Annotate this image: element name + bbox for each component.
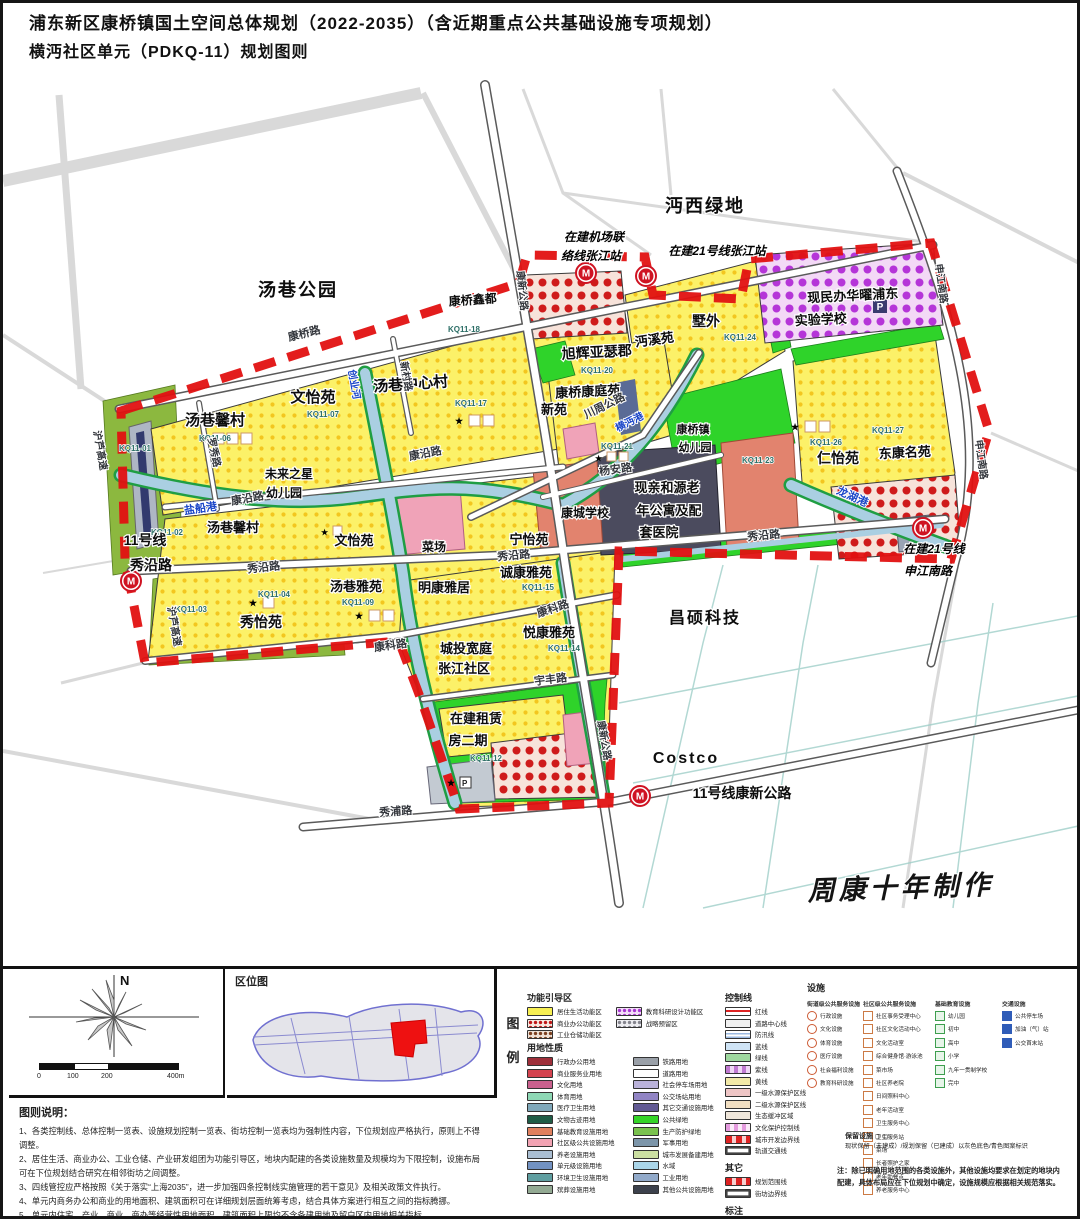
legend-item: 社区养老院: [863, 1078, 923, 1088]
facility-icon: [863, 1011, 873, 1021]
map-label: 康桥鑫都: [448, 290, 497, 308]
map-label: 宁怡苑: [509, 532, 548, 547]
map-label: 文怡苑: [290, 388, 335, 406]
svg-text:P: P: [462, 779, 468, 788]
legend-item: 社区级公共设施用地: [527, 1138, 615, 1147]
legend-item: 文物古迹用地: [527, 1115, 615, 1124]
facility-group-education: 基础教育设施 幼儿园初中高中小学九年一贯制学校完中: [935, 999, 987, 1091]
map-label: 汤巷馨村: [185, 411, 245, 429]
svg-text:★: ★: [249, 598, 258, 608]
legend-landuse-col2: 铁路用地道路用地社会停车场用地公交场站用地其它交通设施用地公共绿地生产防护绿地军…: [633, 1057, 714, 1196]
map-label: 在建租赁: [450, 711, 502, 726]
map-label: 周康十年制作: [806, 870, 995, 907]
facility-icon: [863, 1024, 873, 1034]
facility-icon: [863, 1065, 873, 1075]
legend-item: 军事用地: [633, 1138, 714, 1147]
map-label: 房二期: [448, 733, 487, 748]
legend-item: 商业服务业用地: [527, 1069, 615, 1078]
legend-item: 行政设施: [807, 1011, 860, 1021]
title-block: 浦东新区康桥镇国土空间总体规划（2022-2035）（含近期重点公共基础设施专项…: [3, 3, 1077, 65]
compass-box: N 0 100 200 400m: [9, 969, 225, 1098]
note-line: 1、各类控制线、总体控制一览表、设施规划控制一览表、街坊控制一览表均为强制性内容…: [19, 1124, 487, 1152]
legend-item: 文化设施: [807, 1024, 860, 1034]
facility-icon: [807, 1011, 817, 1021]
title-line1: 浦东新区康桥镇国土空间总体规划（2022-2035）（含近期重点公共基础设施专项…: [29, 9, 1077, 34]
legend-item: 公交首末站: [1002, 1038, 1049, 1048]
legend-item: 加油（气）站: [1002, 1024, 1049, 1034]
map-label: KQ11-07: [307, 410, 340, 419]
svg-text:★: ★: [455, 416, 464, 426]
facility-icon: [863, 1078, 873, 1088]
legend-item: 生产防护绿地: [633, 1127, 714, 1136]
legend-item: 其它交通设施用地: [633, 1103, 714, 1112]
legend-item: 环境卫生设施用地: [527, 1173, 615, 1182]
svg-text:★: ★: [447, 778, 456, 788]
compass-rose-icon: N: [9, 969, 221, 1059]
map-label: KQ11-21: [601, 442, 634, 451]
map-label: KQ11-15: [522, 583, 555, 592]
bottom-panel: N 0 100 200 400m 区位图 图 例: [3, 966, 1077, 1216]
facility-icon: [1002, 1024, 1012, 1034]
map-label: 在建21号线: [903, 542, 966, 556]
legend-item: 公交场站用地: [633, 1092, 714, 1101]
legend-item: 卫生服务中心: [863, 1118, 923, 1128]
facility-group-street: 街道级公共服务设施 行政设施文化设施体育设施医疗设施社会福利设施教育科研设施: [807, 999, 860, 1091]
map-label: KQ11-24: [724, 333, 757, 342]
legend-item: 日间照料中心: [863, 1091, 923, 1101]
map-label: 年公寓及配: [636, 503, 701, 518]
legend-function-col2: 教育科研设计功能区战略预留区: [616, 1007, 704, 1042]
legend-item: 文化保护控制线: [725, 1123, 829, 1132]
notes-box: 图则说明： 1、各类控制线、总体控制一览表、设施规划控制一览表、街坊控制一览表均…: [9, 1098, 497, 1212]
facility-icon: [1002, 1011, 1012, 1021]
svg-text:M: M: [127, 577, 135, 588]
map-label: 11号线: [124, 532, 167, 548]
legend-item: 初中: [935, 1024, 987, 1034]
legend-item: 工业用地: [633, 1173, 714, 1182]
legend-item: 单元级设施用地: [527, 1161, 615, 1170]
map-label: KQ11-20: [581, 366, 614, 375]
legend-item: 轨道交通线: [725, 1146, 829, 1155]
legend-item: 九年一贯制学校: [935, 1065, 987, 1075]
map-label: KQ11-04: [258, 590, 291, 599]
map-label: 张江社区: [438, 661, 490, 676]
facility-icon: [807, 1078, 817, 1088]
map-label: 悦康雅苑: [523, 625, 575, 640]
map-label: KQ11-01: [119, 444, 152, 453]
legend-item: 综合健身馆·游泳池: [863, 1051, 923, 1061]
note-line: 3、四线管控应严格按照《关于落实“上海2035”，进一步加强四条控制线实施管理的…: [19, 1180, 487, 1194]
map-label: 幼儿园: [266, 485, 302, 500]
scale-tick: 100: [67, 1073, 79, 1080]
legend-item: 教育科研设计功能区: [616, 1007, 704, 1016]
legend-box: 图 例 功能引导区 居住生活功能区商业办公功能区工业仓储功能区 教育科研设计功能…: [497, 969, 1071, 1212]
scale-tick: 400m: [167, 1073, 185, 1080]
legend-item: 幼儿园: [935, 1011, 987, 1021]
map-label: 11号线康新公路: [693, 785, 793, 801]
legend-section-title: 其它: [725, 1161, 829, 1174]
facility-icon: [935, 1078, 945, 1088]
svg-text:M: M: [582, 269, 590, 280]
legend-section-title: 功能引导区: [527, 991, 703, 1004]
map-label: KQ11-26: [810, 438, 843, 447]
legend-function-col1: 居住生活功能区商业办公功能区工业仓储功能区: [527, 1007, 602, 1042]
legend-item: 完中: [935, 1078, 987, 1088]
facility-icon: [935, 1051, 945, 1061]
legend-item: 生态缓冲区域: [725, 1111, 829, 1120]
legend-item: 社区文化活动中心: [863, 1024, 923, 1034]
map-label: 在建机场联: [564, 230, 626, 244]
map-label: 汤巷雅苑: [330, 579, 382, 594]
svg-text:★: ★: [791, 422, 800, 432]
location-map-box: 区位图: [227, 969, 497, 1098]
facility-icon: [1002, 1038, 1012, 1048]
retained-facilities-note: 保留设施 ▢ ▢ 现状保留（未建成）/规划保留（已建成）以灰色底色/青色图案标识: [845, 1132, 1065, 1152]
facility-group-traffic: 交通设施 公共停车场加油（气）站公交首末站: [1002, 999, 1049, 1051]
note-line: 4、单元内商务办公和商业的用地面积、建筑面积可在详细规划层面统筹考虑，结合具体方…: [19, 1194, 487, 1208]
map-label: KQ11-18: [448, 325, 481, 334]
facility-icon: [935, 1065, 945, 1075]
map-label: 仁怡苑: [817, 450, 859, 466]
legend-section-title: 设施: [807, 981, 825, 994]
svg-text:M: M: [642, 272, 650, 283]
legend-item: 规划范围线: [725, 1177, 829, 1186]
facility-icon: [807, 1024, 817, 1034]
map-label: 汤巷公园: [258, 280, 338, 300]
scale-tick: 0: [37, 1073, 41, 1080]
legend-item: 其他公共设施用地: [633, 1185, 714, 1194]
map-label: 沔西绿地: [665, 195, 745, 216]
map-label: 城投宽庭: [440, 641, 493, 656]
map-label: KQ11-03: [175, 605, 208, 614]
map-label: 菜场: [421, 539, 446, 554]
svg-text:M: M: [636, 792, 644, 803]
title-line2: 横沔社区单元（PDKQ-11）规划图则: [29, 38, 1077, 62]
location-map: [231, 985, 493, 1093]
map-label: 实验学校: [794, 311, 848, 329]
map-label: 秀浦路: [378, 803, 414, 819]
map-label: 汤巷馨村: [207, 520, 259, 535]
map-label: Costco: [653, 750, 719, 767]
map-label: 康桥路: [286, 322, 322, 344]
legend-item: 公共停车场: [1002, 1011, 1049, 1021]
facility-icon: [935, 1038, 945, 1048]
legend-item: 公共绿地: [633, 1115, 714, 1124]
legend-section-title: 标注: [725, 1204, 829, 1217]
svg-text:P: P: [877, 302, 884, 313]
map-label: 东康名苑: [878, 444, 931, 462]
map-label: 现亲和源老: [634, 480, 699, 495]
map-label: 明康雅居: [418, 580, 470, 595]
svg-text:★: ★: [355, 611, 364, 621]
facilities-note: 注：除已明确用地范围的各类设施外，其他设施均要求在划定的地块内配建，具体布局应在…: [837, 1165, 1065, 1189]
legend-item: 行政办公用地: [527, 1057, 615, 1066]
legend-item: 工业仓储功能区: [527, 1030, 602, 1039]
legend-item: 医疗设施: [807, 1051, 860, 1061]
legend-others: 规划范围线街坊边界线: [725, 1177, 829, 1198]
legend-item: 教育科研设施: [807, 1078, 860, 1088]
compass-n: N: [120, 973, 129, 988]
note-line: 5、单元内住宅、产业、商业、商办等经营性用地面积、建筑面积上限均不含备建用地及留…: [19, 1208, 487, 1219]
legend-item: 文化活动室: [863, 1038, 923, 1048]
legend-item: 社会停车场用地: [633, 1080, 714, 1089]
facility-icon: [935, 1011, 945, 1021]
map-label: 络线张江站: [561, 249, 623, 263]
map-label: 幼儿园: [679, 440, 712, 454]
map-label: KQ11-09: [342, 598, 375, 607]
legend-item: 社会福利设施: [807, 1065, 860, 1075]
map-label: 昌硕科技: [669, 608, 741, 627]
legend-item: 城市开发边界线: [725, 1135, 829, 1144]
map-label: 文怡苑: [334, 533, 373, 548]
plan-sheet: 浦东新区康桥镇国土空间总体规划（2022-2035）（含近期重点公共基础设施专项…: [0, 0, 1080, 1219]
facility-icon: [863, 1118, 873, 1128]
facility-icon: [807, 1065, 817, 1075]
map-label: 秀沿路: [129, 557, 173, 573]
map-label: 在建21号线张江站: [668, 244, 767, 258]
legend-item: 养老设施用地: [527, 1150, 615, 1159]
facility-icon: [863, 1091, 873, 1101]
legend-landuse-col1: 行政办公用地商业服务业用地文化用地体育用地医疗卫生用地文物古迹用地基础教育设施用…: [527, 1057, 615, 1196]
legend-item: 水域: [633, 1161, 714, 1170]
facility-icon: [863, 1038, 873, 1048]
svg-text:M: M: [919, 524, 927, 535]
facility-icon: [863, 1051, 873, 1061]
svg-text:★: ★: [595, 454, 603, 463]
map-label: 康桥镇: [677, 422, 710, 436]
legend-item: 居住生活功能区: [527, 1007, 602, 1016]
map-label: 未来之星: [264, 466, 313, 481]
legend-item: 菜市场: [863, 1065, 923, 1075]
map-label: 申江南路: [904, 564, 954, 578]
map-label: 康城学校: [561, 505, 610, 520]
map-label: 套医院: [638, 525, 678, 540]
map-label: KQ11-27: [872, 426, 905, 435]
map-label: 秀怡苑: [239, 614, 282, 630]
map-label: KQ11-23: [742, 456, 775, 465]
legend-mark: 图 例: [505, 1007, 521, 1075]
legend-item: 铁路用地: [633, 1057, 714, 1066]
svg-text:★: ★: [321, 528, 329, 537]
legend-item: 文化用地: [527, 1080, 615, 1089]
legend-item: 基础教育设施用地: [527, 1127, 615, 1136]
legend-item: 社区事务受理中心: [863, 1011, 923, 1021]
zone-commercial: [525, 271, 627, 339]
notes-title: 图则说明：: [19, 1104, 487, 1120]
note-line: 2、居住生活、商业办公、工业仓储、产业研发组团为功能引导区，地块内配建的各类设施…: [19, 1152, 487, 1180]
legend-item: 小学: [935, 1051, 987, 1061]
legend-item: 医疗卫生用地: [527, 1103, 615, 1112]
legend-item: 商业办公功能区: [527, 1019, 602, 1028]
legend-section-title: 用地性质: [527, 1041, 714, 1054]
map-label: KQ11-14: [548, 644, 581, 653]
legend-item: 二级水源保护区线: [725, 1100, 829, 1109]
legend-item: 体育设施: [807, 1038, 860, 1048]
map-label: 诚康雅苑: [500, 565, 552, 580]
facility-icon: [935, 1024, 945, 1034]
map-label: 墅外: [692, 313, 720, 329]
legend-item: 道路用地: [633, 1069, 714, 1078]
legend-item: 体育用地: [527, 1092, 615, 1101]
legend-item: 老年活动室: [863, 1105, 923, 1115]
legend-item: 殡葬设施用地: [527, 1185, 615, 1194]
scale-tick: 200: [101, 1073, 113, 1080]
map-label: 新苑: [541, 402, 567, 417]
facility-icon: [807, 1051, 817, 1061]
map-label: KQ11-17: [455, 399, 488, 408]
facility-icon: [863, 1105, 873, 1115]
map-label: KQ11-12: [470, 754, 503, 763]
legend-item: 高中: [935, 1038, 987, 1048]
legend-item: 战略预留区: [616, 1019, 704, 1028]
legend-item: 街坊边界线: [725, 1189, 829, 1198]
legend-item: 城市发展备建用地: [633, 1150, 714, 1159]
facility-icon: [807, 1038, 817, 1048]
